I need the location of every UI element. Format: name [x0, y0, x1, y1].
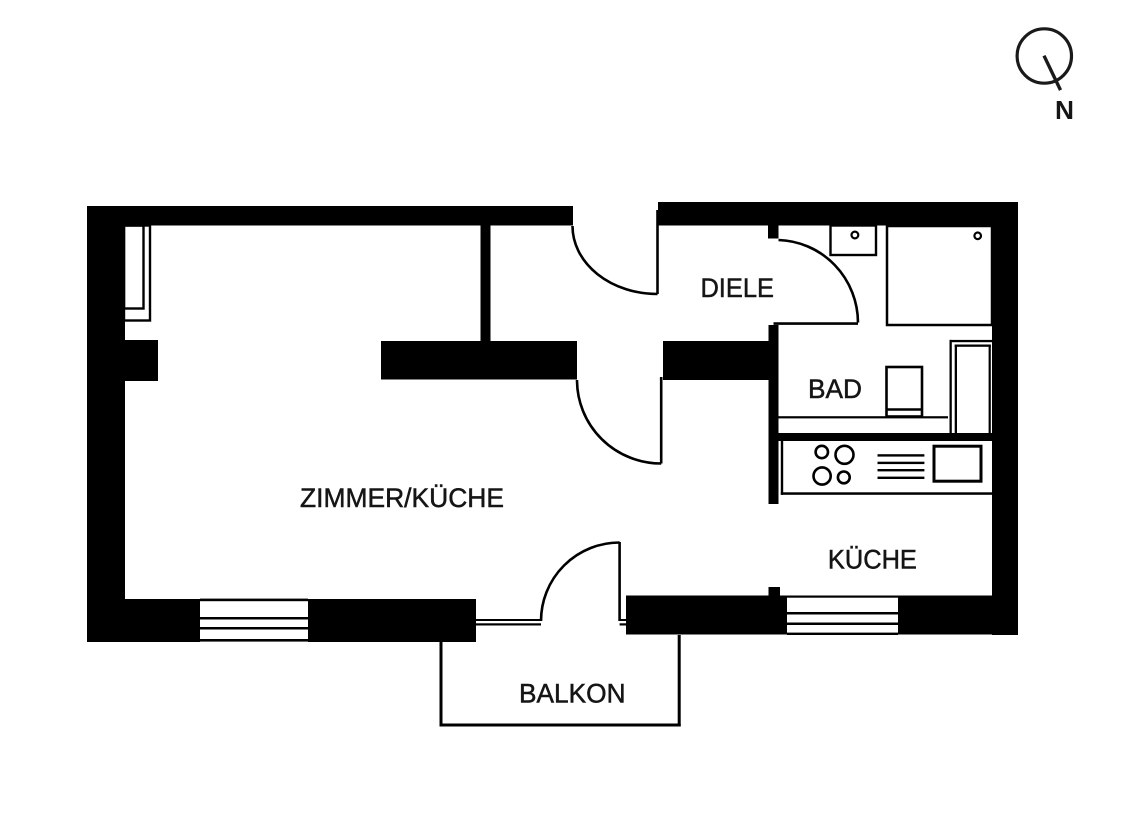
svg-text:N: N: [1055, 95, 1074, 125]
svg-text:DIELE: DIELE: [700, 272, 774, 303]
svg-text:ZIMMER/KÜCHE: ZIMMER/KÜCHE: [300, 482, 504, 513]
svg-text:BAD: BAD: [808, 373, 862, 404]
svg-text:KÜCHE: KÜCHE: [828, 543, 917, 574]
svg-text:BALKON: BALKON: [519, 677, 626, 708]
